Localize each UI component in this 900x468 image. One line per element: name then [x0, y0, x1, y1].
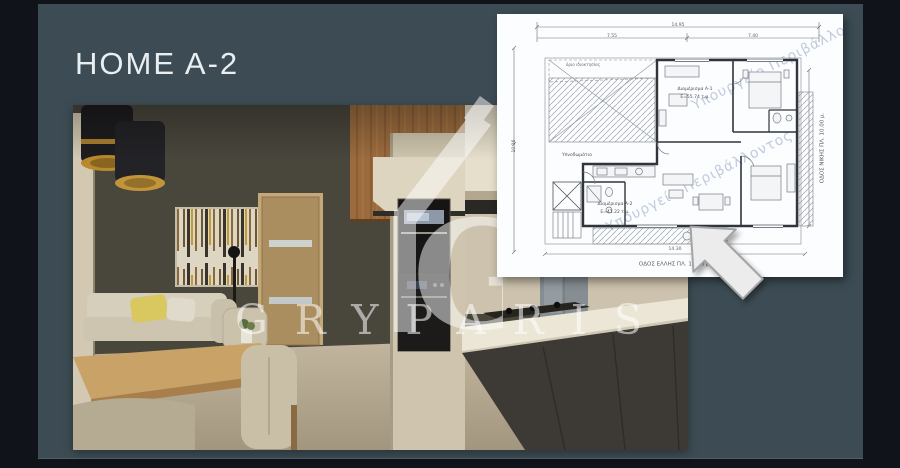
room-label-a2: Διαμέρισμα Α-2	[598, 202, 633, 207]
cursor-arrow-icon	[658, 202, 788, 327]
slide-canvas: HOME A-2	[38, 4, 863, 458]
boundary-label: όριο ιδιοκτησίας	[566, 63, 600, 68]
yellow-pillow	[130, 294, 169, 324]
bottom-frame-bar	[0, 459, 900, 468]
right-frame-bar	[863, 0, 900, 468]
terrace-hatch	[549, 78, 655, 142]
room-label-bedroom: Υπνοδωμάτιο	[562, 153, 592, 158]
brand-watermark-text: GRYPARIS	[235, 296, 669, 344]
stairs	[553, 212, 581, 238]
room-area-a1: Ε=55.74 τ.μ.	[680, 95, 709, 100]
dining-chair-front	[241, 345, 297, 450]
planting-strip-right	[799, 92, 813, 226]
room-area-a2: Ε=41.22 τ.μ.	[600, 210, 629, 215]
street-label-right: ΟΔΟΣ ΝΙΚΗΣ ΠΛ. 10.00 μ.	[819, 113, 825, 183]
elevator	[553, 182, 581, 210]
room-label-a1: Διαμέρισμα Α-1	[678, 87, 713, 92]
chair-bottom-left	[73, 398, 195, 450]
bottom-divider-line	[38, 458, 863, 459]
dim-top-left: 7.55	[607, 34, 617, 39]
page-title: HOME A-2	[75, 46, 239, 82]
dim-top-total: 14.95	[672, 23, 685, 28]
left-frame-bar	[0, 0, 38, 468]
dim-top-right: 7.40	[748, 34, 758, 39]
screenshot-root: { "slide": { "title": "HOME A-2" }, "bra…	[0, 0, 900, 468]
dim-left-height: 10.16	[512, 140, 517, 153]
sofa	[83, 293, 237, 343]
